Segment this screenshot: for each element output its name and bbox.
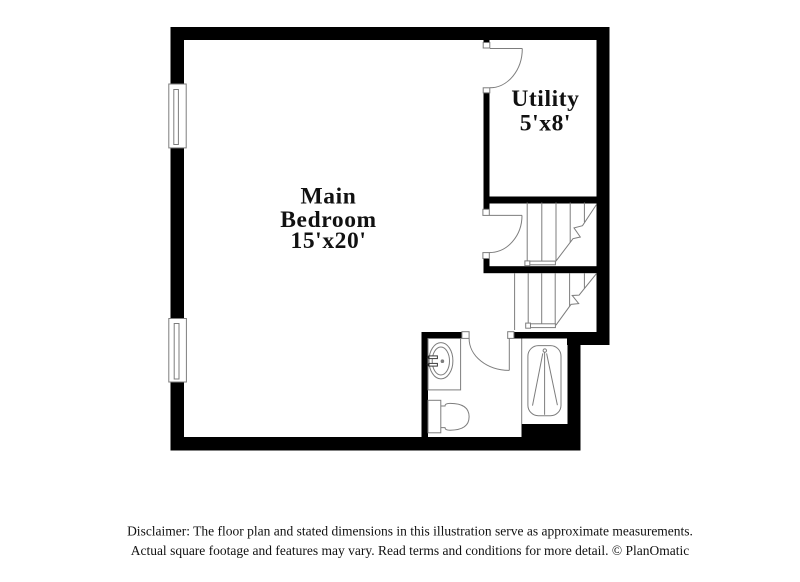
svg-text:Actual square footage and feat: Actual square footage and features may v… (131, 543, 690, 558)
svg-text:5'x8': 5'x8' (520, 111, 571, 137)
svg-text:Disclaimer: The floor plan and: Disclaimer: The floor plan and stated di… (127, 524, 693, 539)
svg-text:Utility: Utility (511, 86, 579, 112)
svg-text:15'x20': 15'x20' (290, 228, 366, 254)
svg-text:Main: Main (301, 184, 357, 210)
